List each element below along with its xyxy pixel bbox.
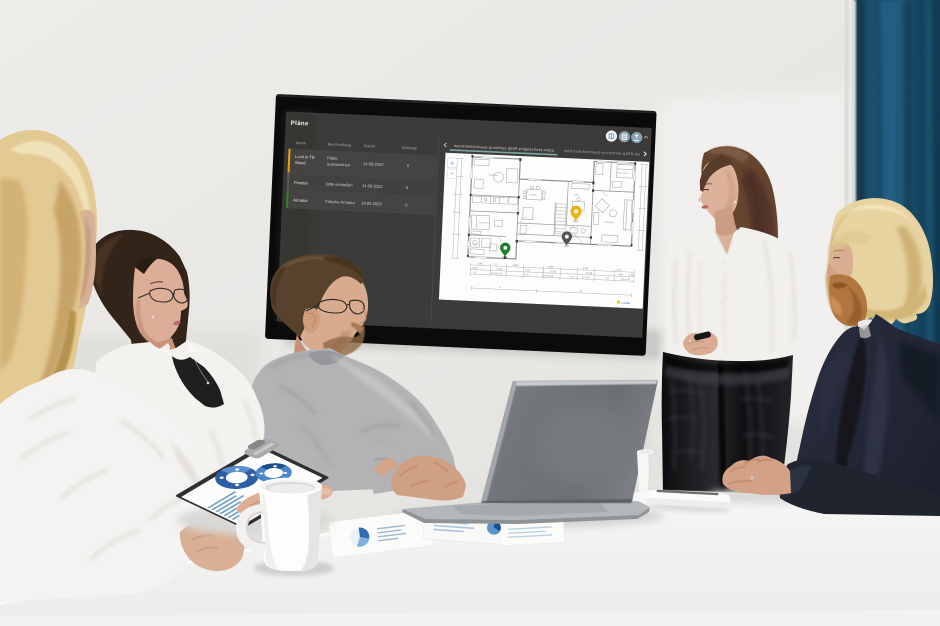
svg-text:Loch in TB: Loch in TB: [295, 154, 315, 160]
svg-text:−: −: [450, 171, 454, 178]
svg-text:0,5 1,36: 0,5 1,36: [621, 278, 630, 281]
svg-text:Pläne: Pläne: [291, 120, 310, 128]
svg-text:SCHLAFEN: SCHLAFEN: [617, 171, 629, 175]
svg-text:0,7 0,5: 0,7 0,5: [582, 276, 590, 279]
svg-text:Name: Name: [296, 141, 306, 145]
svg-text:4,21: 4,21: [616, 269, 621, 272]
svg-text:BAD: BAD: [473, 243, 478, 246]
svg-text:ESSEN: ESSEN: [530, 195, 538, 197]
svg-text:1,75: 1,75: [524, 273, 529, 276]
svg-text:1,135: 1,135: [496, 268, 503, 271]
svg-text:0,26: 0,26: [525, 269, 530, 272]
svg-text:Laufer: Laufer: [621, 301, 631, 305]
svg-text:KIND: KIND: [574, 195, 580, 197]
svg-text:+: +: [450, 160, 454, 167]
svg-text:2,955: 2,955: [512, 264, 519, 267]
svg-text:14.09.2023: 14.09.2023: [361, 200, 382, 206]
svg-text:1,85: 1,85: [629, 274, 634, 277]
svg-text:Armatur: Armatur: [293, 197, 308, 203]
svg-text:5,115: 5,115: [586, 272, 593, 275]
svg-text:Datum: Datum: [364, 144, 375, 148]
svg-text:Platte: Platte: [327, 155, 338, 160]
svg-text:5,115: 5,115: [550, 270, 557, 273]
svg-text:SCHLAFEN: SCHLAFEN: [478, 221, 490, 225]
svg-text:0,85: 0,85: [618, 273, 623, 276]
svg-text:0,6 0,6 0,6: 0,6 0,6 0,6: [542, 274, 554, 278]
svg-text:3,134: 3,134: [582, 267, 589, 270]
svg-text:2,955: 2,955: [547, 265, 554, 268]
svg-text:0,6 0,6 2,5: 0,6 0,6 2,5: [491, 272, 503, 276]
svg-text:14.09.2023: 14.09.2023: [362, 183, 383, 189]
svg-text:Wand: Wand: [295, 160, 306, 166]
svg-text:Fenster: Fenster: [294, 180, 309, 186]
svg-text:1,385: 1,385: [476, 262, 483, 265]
svg-text:14.09.2023: 14.09.2023: [363, 161, 384, 167]
svg-text:BAD: BAD: [572, 233, 577, 236]
svg-text:0,35: 0,35: [472, 267, 477, 270]
svg-text:Anhänge: Anhänge: [402, 146, 417, 151]
